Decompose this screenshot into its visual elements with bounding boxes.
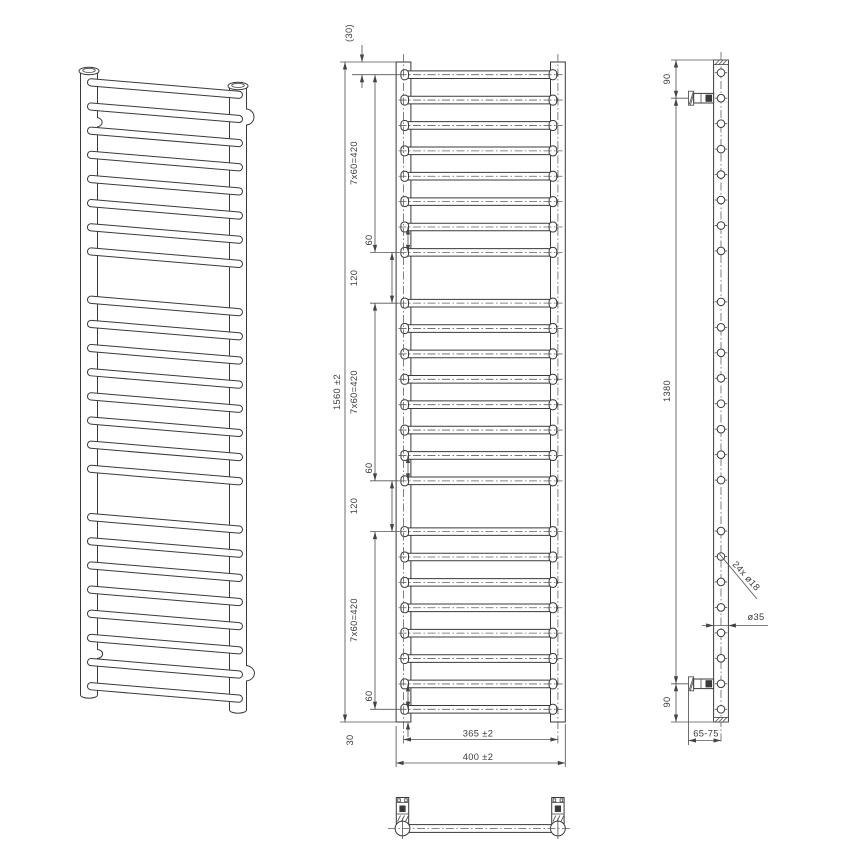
dim-group-pitch-label-3: 7x60=420 [349, 598, 359, 642]
dim-top-offset-label: (30) [344, 24, 354, 42]
dim-bottom-offset-label: 30 [345, 734, 355, 745]
front-view [340, 45, 565, 767]
dim-bracket-span-label: 1380 [662, 380, 672, 402]
dim-bracket-depth-label: 65-75 [693, 729, 719, 739]
top-view [388, 798, 572, 840]
radiator-drawing-svg: (30) 1560 ±2 7x60=420 7x60=420 7x60=420 … [0, 0, 868, 868]
dim-rung-gap-label-1: 60 [364, 234, 374, 245]
dim-bracket-bottom-label: 90 [662, 696, 672, 707]
dim-rung-gap-label-3: 60 [364, 690, 374, 701]
dim-post-dia-label: ø35 [747, 612, 764, 622]
side-view [671, 52, 768, 745]
dim-group-pitch-label-2: 7x60=420 [349, 370, 359, 414]
perspective-view [79, 67, 254, 713]
technical-drawing-page: (30) 1560 ±2 7x60=420 7x60=420 7x60=420 … [0, 0, 868, 868]
dim-axis-width-label: 365 ±2 [463, 729, 493, 739]
dim-rung-gap-label-2: 60 [364, 462, 374, 473]
dim-overall-width-label: 400 ±2 [463, 752, 493, 762]
dim-group-gap-label-2: 120 [349, 498, 359, 515]
dim-rung-count-dia-label: 24x ø18 [730, 559, 762, 592]
dim-bracket-top-label: 90 [662, 73, 672, 84]
dim-group-gap-label-1: 120 [349, 270, 359, 287]
dim-group-pitch-label-1: 7x60=420 [349, 141, 359, 185]
dim-total-height-label: 1560 ±2 [332, 374, 342, 410]
